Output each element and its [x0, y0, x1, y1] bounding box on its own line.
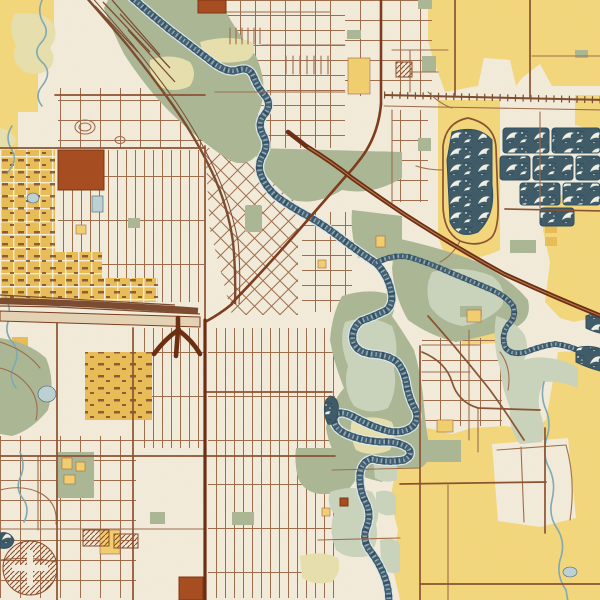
city-map-svg [0, 0, 600, 600]
paper-texture [0, 0, 600, 600]
map-canvas[interactable] [0, 0, 600, 600]
